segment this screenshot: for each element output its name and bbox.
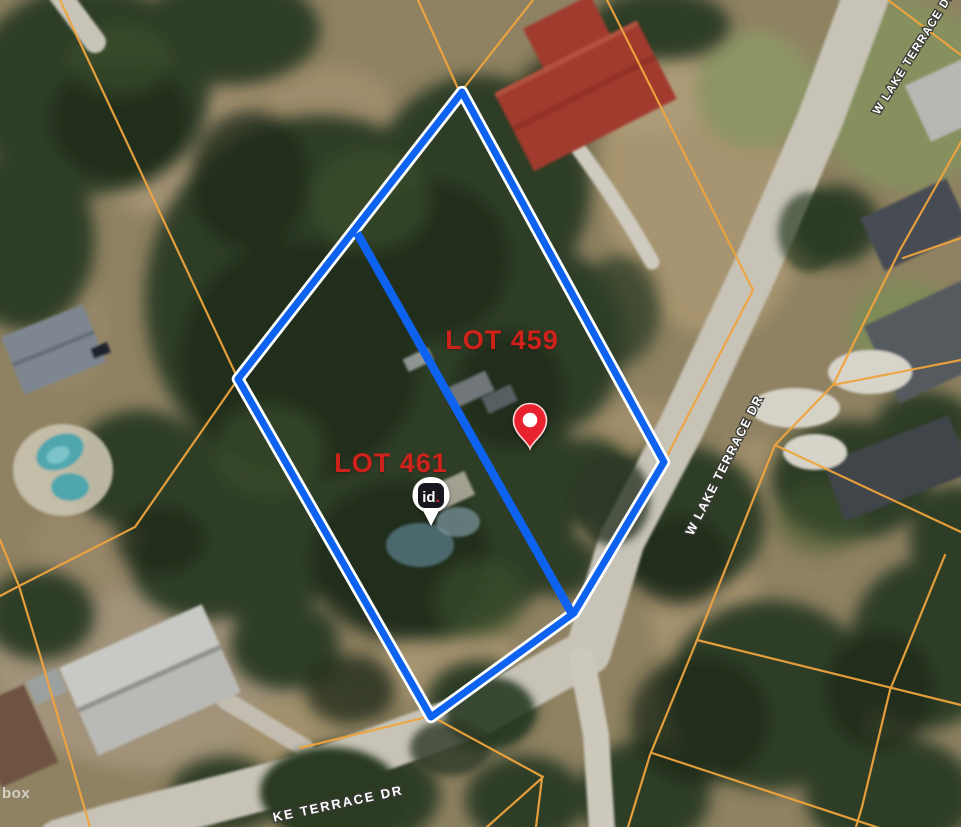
lot-461-label: LOT 461 — [334, 448, 448, 478]
id-pin-text: id — [422, 489, 435, 506]
lot-459-label: LOT 459 — [445, 325, 559, 355]
id-pin-dot: . — [436, 489, 440, 506]
map-canvas[interactable]: LOT 459 LOT 461 W LAKE TERRACE DR W LAKE… — [0, 0, 961, 827]
mapbox-attribution-partial: box — [2, 785, 30, 802]
swimming-pool — [13, 424, 113, 516]
map-viewport[interactable]: LOT 459 LOT 461 W LAKE TERRACE DR W LAKE… — [0, 0, 961, 827]
svg-text:id.: id. — [422, 489, 440, 506]
